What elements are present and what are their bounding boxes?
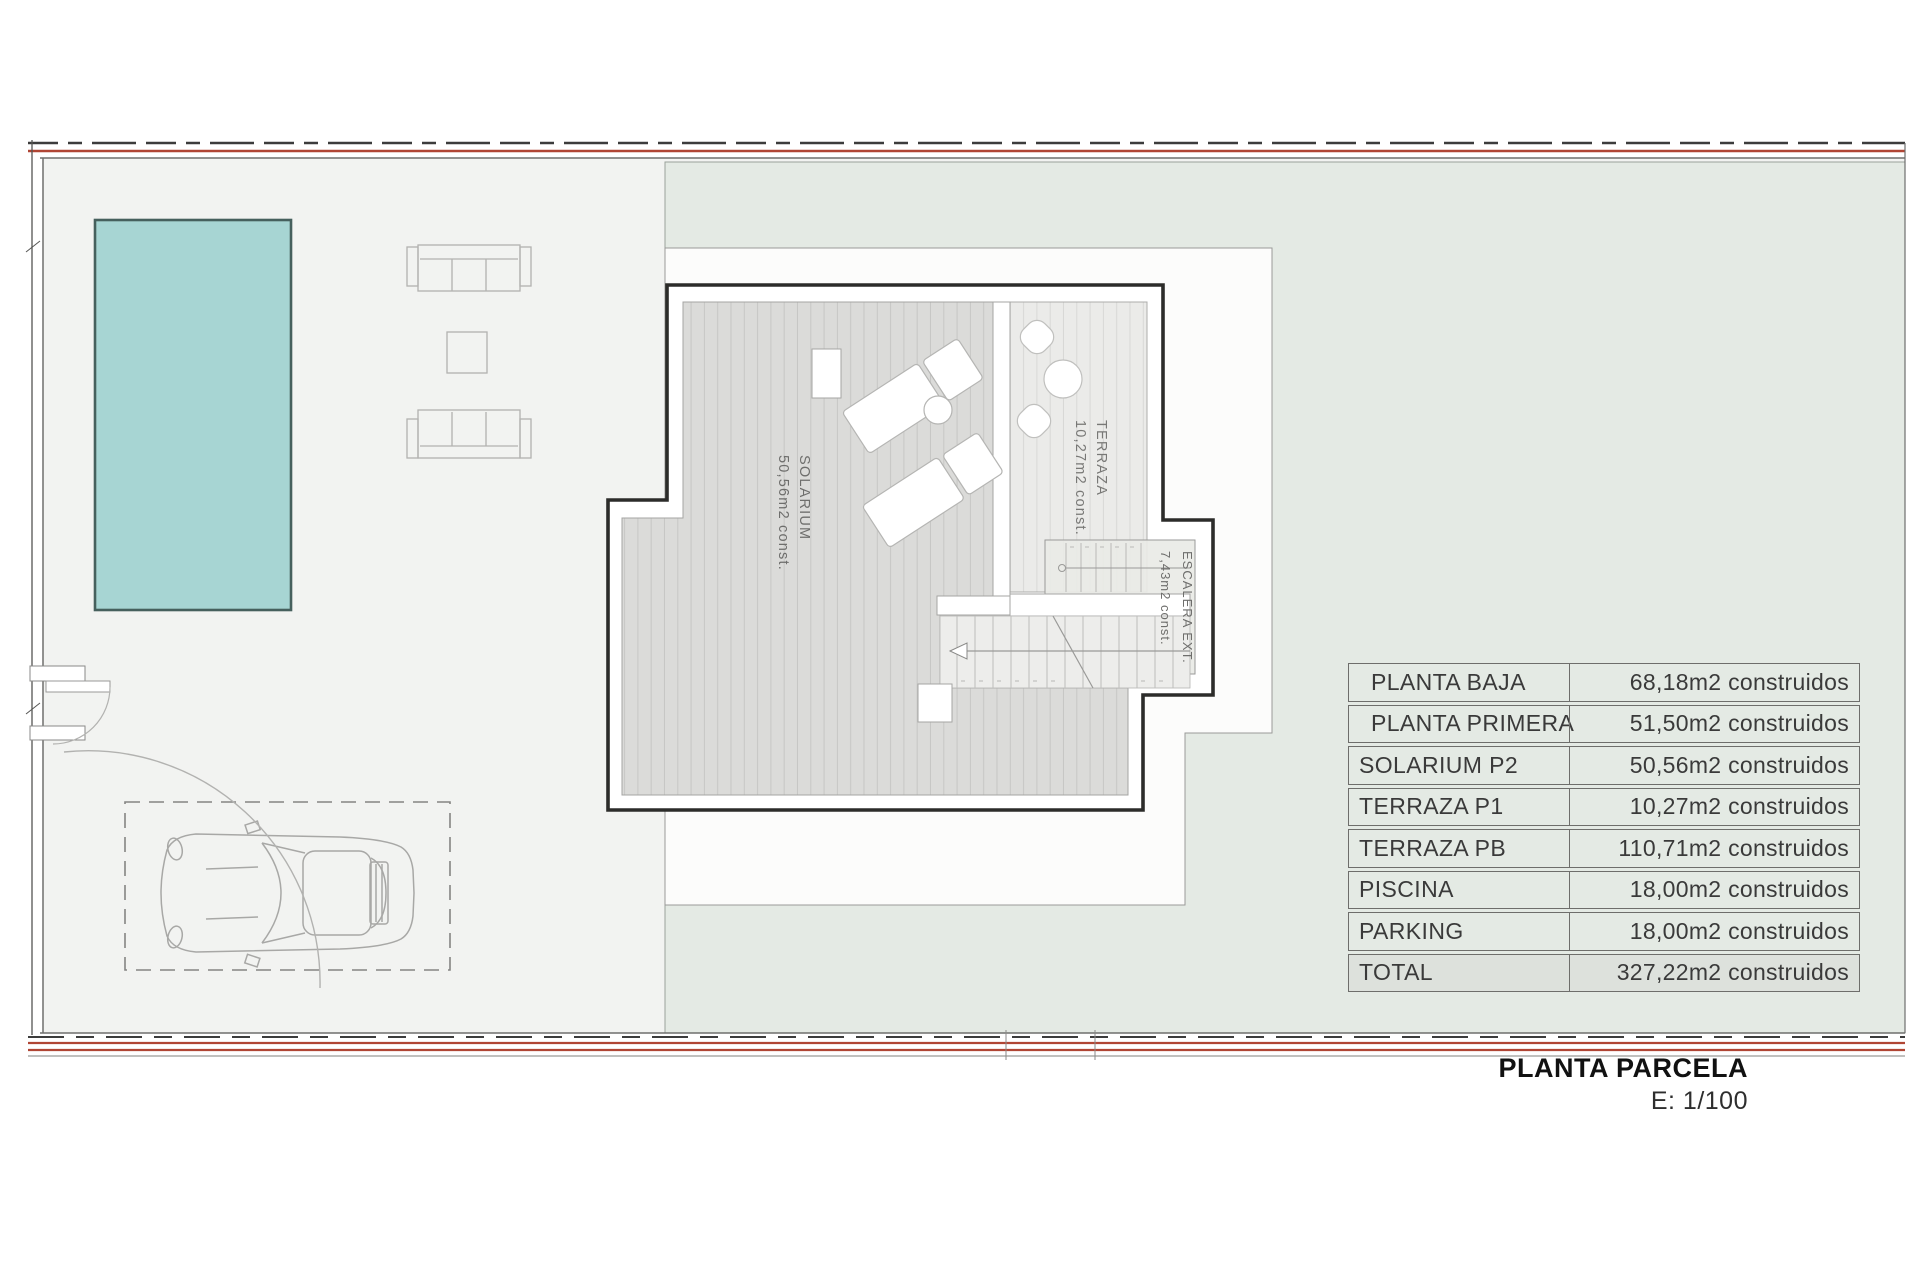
plan-title: PLANTA PARCELA <box>1499 1053 1749 1084</box>
row-label: SOLARIUM P2 <box>1349 747 1569 784</box>
solarium-label-name: SOLARIUM <box>796 455 812 540</box>
table-row: TERRAZA PB 110,71m2 construidos <box>1348 829 1860 868</box>
table-row: TERRAZA P1 10,27m2 construidos <box>1348 788 1860 827</box>
divider-wall <box>993 302 1010 598</box>
stair-lower-flight <box>940 616 1190 688</box>
skylight-box <box>812 349 841 398</box>
row-value: 10,27m2 construidos <box>1569 789 1859 826</box>
wall-bar <box>937 596 1010 615</box>
row-label: PISCINA <box>1349 872 1569 909</box>
title-block: PLANTA PARCELA E: 1/100 <box>1499 1053 1749 1116</box>
row-value: 18,00m2 construidos <box>1569 872 1859 909</box>
boundary-left <box>26 140 43 1035</box>
row-label: TERRAZA P1 <box>1349 789 1569 826</box>
gate-jamb <box>30 666 85 681</box>
deck-box <box>918 684 952 722</box>
table-row: SOLARIUM P2 50,56m2 construidos <box>1348 746 1860 785</box>
solarium-label-area: 50,56m2 const. <box>775 455 791 571</box>
pedestrian-door <box>46 681 110 692</box>
gate-jamb <box>30 726 85 740</box>
site-plan-sheet: SOLARIUM 50,56m2 const. TERRAZA 10,27m2 … <box>0 0 1920 1280</box>
row-label: TOTAL <box>1349 955 1569 992</box>
terrace-table <box>1044 360 1082 398</box>
escalera-label-area: 7,43m2 const. <box>1158 551 1173 646</box>
terraza-label-name: TERRAZA <box>1093 420 1109 496</box>
areas-table: PLANTA BAJA 68,18m2 construidos PLANTA P… <box>1348 663 1860 995</box>
row-value: 51,50m2 construidos <box>1569 706 1859 743</box>
row-value: 50,56m2 construidos <box>1569 747 1859 784</box>
row-label: PLANTA BAJA <box>1349 664 1569 701</box>
pool <box>95 220 291 610</box>
row-value: 18,00m2 construidos <box>1569 913 1859 950</box>
table-row: PISCINA 18,00m2 construidos <box>1348 871 1860 910</box>
table-row: PARKING 18,00m2 construidos <box>1348 912 1860 951</box>
row-label: PLANTA PRIMERA <box>1349 706 1569 743</box>
boundary-top <box>28 143 1905 158</box>
table-row: PLANTA PRIMERA 51,50m2 construidos <box>1348 705 1860 744</box>
side-table <box>924 396 952 424</box>
row-value: 327,22m2 construidos <box>1569 955 1859 992</box>
row-label: TERRAZA PB <box>1349 830 1569 867</box>
row-value: 68,18m2 construidos <box>1569 664 1859 701</box>
table-row-total: TOTAL 327,22m2 construidos <box>1348 954 1860 993</box>
row-label: PARKING <box>1349 913 1569 950</box>
escalera-label-name: ESCALERA EXT. <box>1180 551 1195 664</box>
row-value: 110,71m2 construidos <box>1569 830 1859 867</box>
table-row: PLANTA BAJA 68,18m2 construidos <box>1348 663 1860 702</box>
terraza-label-area: 10,27m2 const. <box>1072 420 1088 536</box>
plan-scale: E: 1/100 <box>1499 1087 1749 1116</box>
